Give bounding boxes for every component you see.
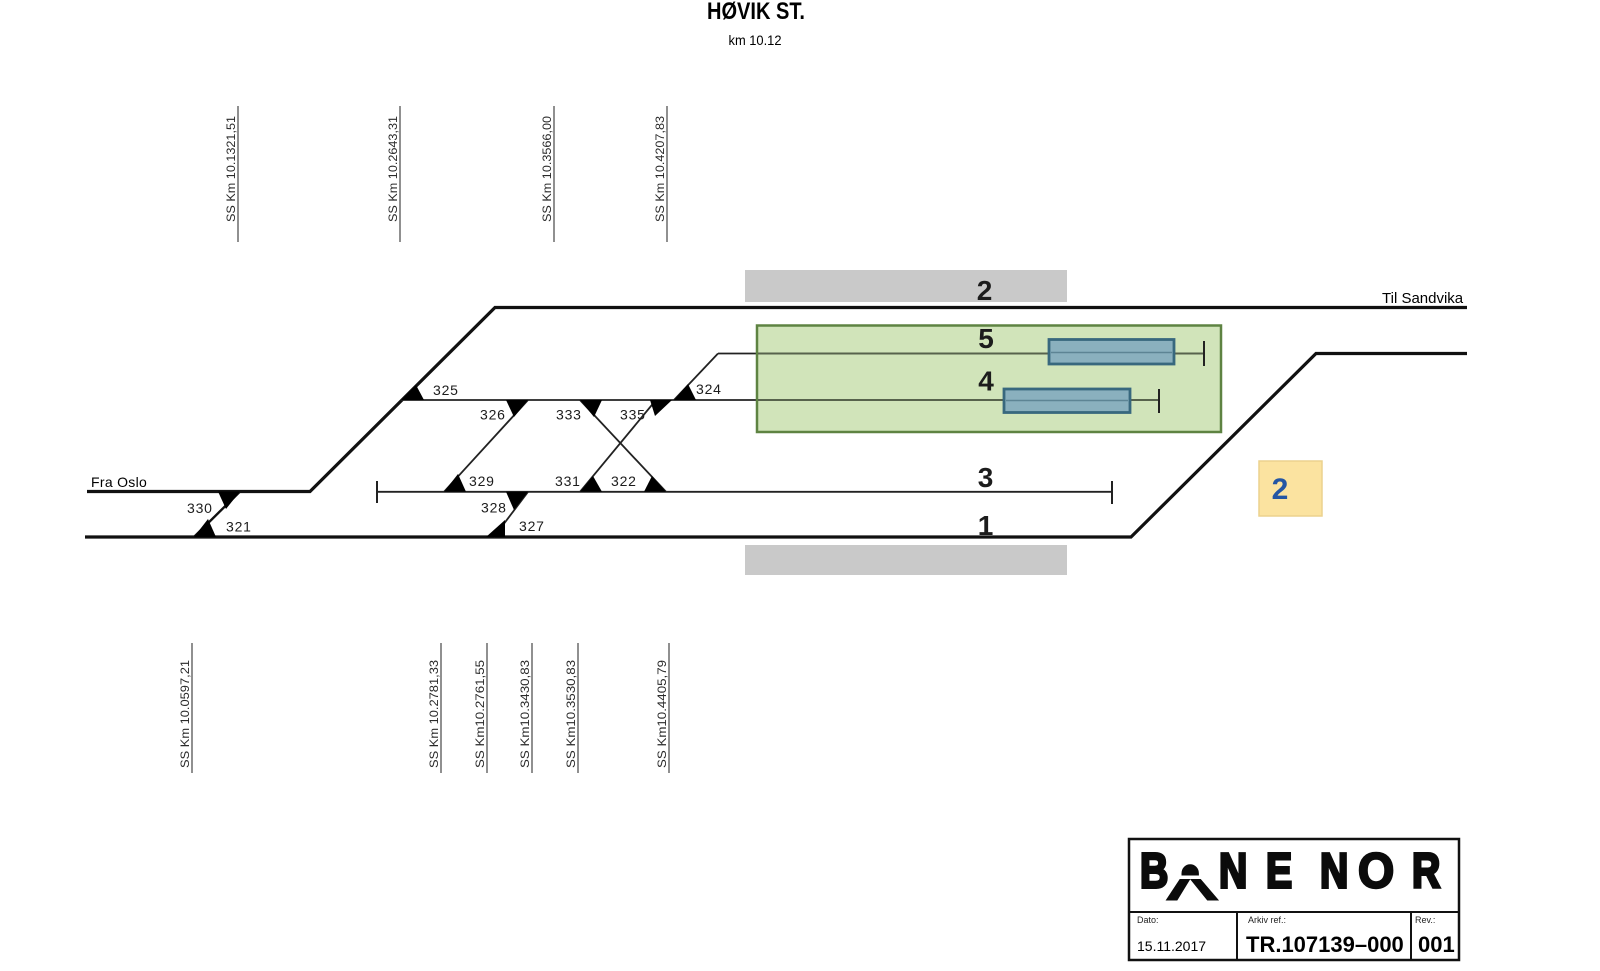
svg-text:SS Km10.3530,83: SS Km10.3530,83	[564, 660, 578, 768]
svg-text:326: 326	[480, 407, 506, 423]
svg-text:SS Km10.2761,55: SS Km10.2761,55	[473, 660, 487, 768]
svg-text:SS Km 10.3566,00: SS Km 10.3566,00	[540, 116, 554, 222]
svg-text:335: 335	[620, 407, 646, 423]
svg-text:4: 4	[978, 366, 994, 397]
svg-text:2: 2	[977, 275, 993, 306]
svg-text:HØVIK ST.: HØVIK ST.	[707, 0, 805, 25]
svg-text:321: 321	[226, 519, 252, 535]
svg-text:SS Km10.3430,83: SS Km10.3430,83	[518, 660, 532, 768]
svg-text:N: N	[1219, 844, 1247, 898]
svg-text:327: 327	[519, 518, 545, 534]
svg-text:15.11.2017: 15.11.2017	[1137, 938, 1206, 954]
svg-text:R: R	[1412, 844, 1440, 898]
svg-text:2: 2	[1272, 473, 1289, 506]
svg-text:Dato:: Dato:	[1137, 915, 1159, 925]
svg-text:328: 328	[481, 500, 507, 516]
svg-text:SS Km 10.2643,31: SS Km 10.2643,31	[386, 116, 400, 222]
svg-text:B: B	[1140, 844, 1168, 898]
svg-text:TR.107139–000: TR.107139–000	[1246, 932, 1404, 957]
svg-text:330: 330	[187, 500, 213, 516]
svg-text:O: O	[1358, 844, 1394, 898]
svg-text:325: 325	[433, 382, 459, 398]
svg-text:Til Sandvika: Til Sandvika	[1382, 290, 1464, 307]
svg-text:SS Km10.4405,79: SS Km10.4405,79	[655, 660, 669, 768]
svg-text:Rev.:: Rev.:	[1415, 915, 1435, 925]
svg-text:N: N	[1320, 844, 1348, 898]
svg-text:1: 1	[978, 510, 994, 541]
svg-text:329: 329	[469, 473, 495, 489]
svg-text:3: 3	[978, 462, 994, 493]
svg-text:km 10.12: km 10.12	[729, 32, 782, 48]
svg-text:Arkiv ref.:: Arkiv ref.:	[1248, 915, 1286, 925]
svg-text:324: 324	[696, 381, 722, 397]
svg-text:E: E	[1266, 844, 1292, 898]
svg-text:5: 5	[978, 323, 994, 354]
svg-text:SS Km 10.1321,51: SS Km 10.1321,51	[224, 116, 238, 222]
svg-text:001: 001	[1418, 932, 1455, 957]
svg-text:333: 333	[556, 407, 582, 423]
svg-text:SS Km 10.4207,83: SS Km 10.4207,83	[653, 116, 667, 222]
svg-text:SS Km 10.2781,33: SS Km 10.2781,33	[427, 660, 441, 768]
svg-text:322: 322	[611, 473, 637, 489]
svg-text:331: 331	[555, 473, 581, 489]
svg-text:Fra Oslo: Fra Oslo	[91, 474, 147, 490]
svg-text:SS Km 10.0597,21: SS Km 10.0597,21	[178, 660, 192, 768]
